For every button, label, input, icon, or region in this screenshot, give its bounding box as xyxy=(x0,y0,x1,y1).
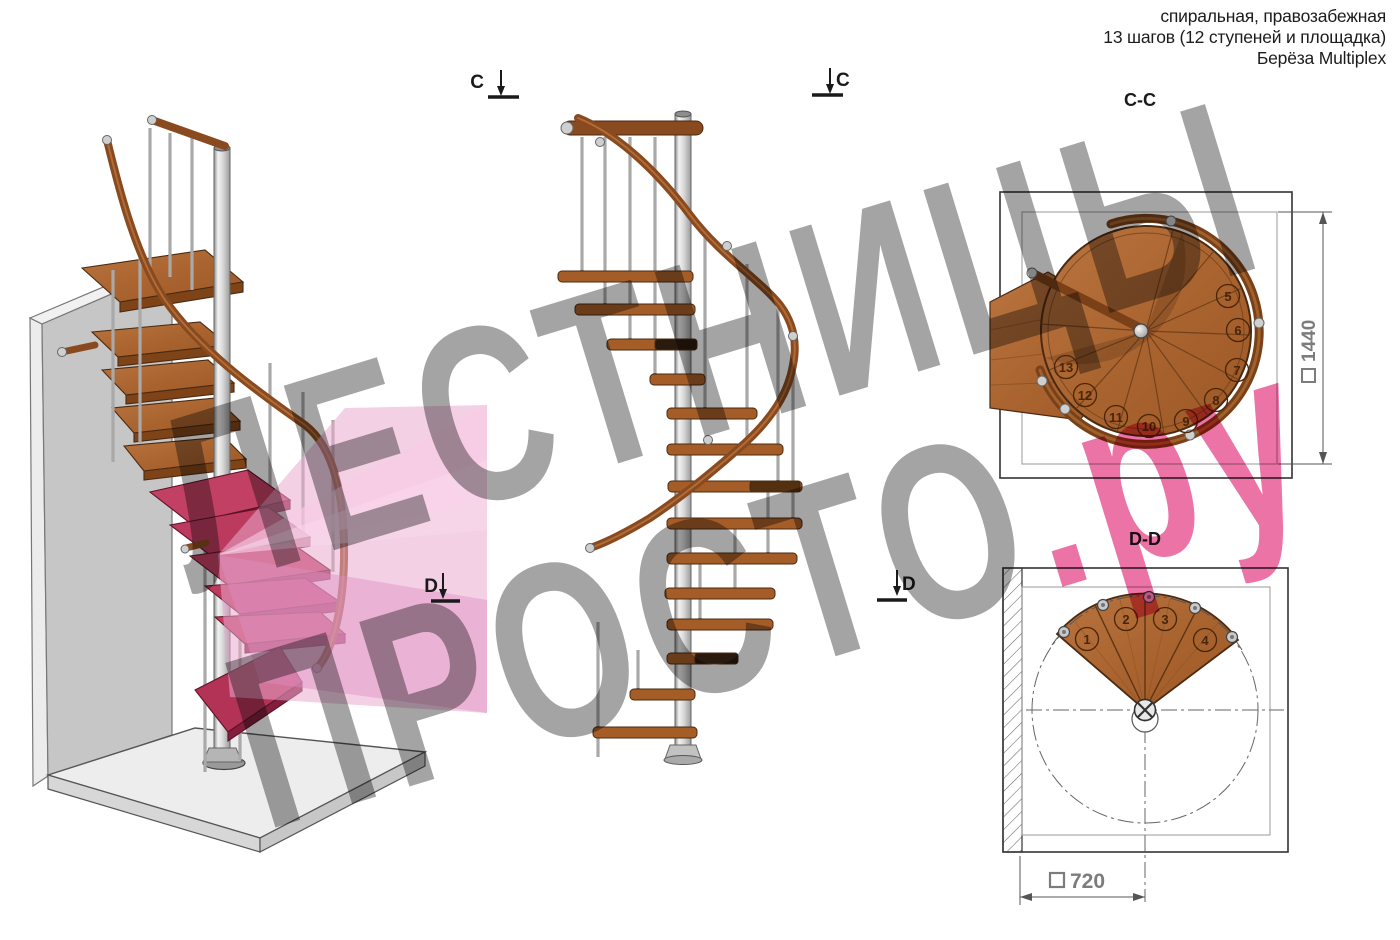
dd-plan-view: D-D xyxy=(1003,529,1288,905)
svg-text:2: 2 xyxy=(1122,612,1129,627)
svg-text:D: D xyxy=(902,574,916,595)
svg-text:C: C xyxy=(836,70,850,91)
cc-title: C-C xyxy=(1124,90,1156,110)
svg-text:9: 9 xyxy=(1182,414,1189,429)
3d-view xyxy=(30,116,487,853)
svg-text:4: 4 xyxy=(1201,633,1209,648)
svg-text:13: 13 xyxy=(1059,360,1073,375)
annotation-steps: 13 шагов (12 ступеней и площадка) xyxy=(1103,27,1386,48)
annotation-material: Берёза Multiplex xyxy=(1103,48,1386,69)
technical-drawing: C C D D C-C xyxy=(0,0,1400,940)
section-marker-c-left: C xyxy=(470,70,519,97)
svg-text:720: 720 xyxy=(1070,870,1105,893)
svg-text:7: 7 xyxy=(1233,363,1240,378)
section-marker-d-right: D xyxy=(877,570,916,600)
square-symbol xyxy=(1050,873,1064,887)
svg-text:1440: 1440 xyxy=(1299,320,1320,362)
section-plane-pink xyxy=(218,405,487,713)
stair-drawing-page: C C D D C-C xyxy=(0,0,1400,940)
svg-text:12: 12 xyxy=(1078,388,1092,403)
drawing-annotation: спиральная, правозабежная 13 шагов (12 с… xyxy=(1103,6,1386,69)
square-symbol xyxy=(1302,369,1315,382)
section-marker-c-right: C xyxy=(812,68,850,95)
svg-text:1: 1 xyxy=(1083,632,1090,647)
svg-text:C: C xyxy=(470,72,484,93)
svg-text:5: 5 xyxy=(1224,289,1231,304)
annotation-type: спиральная, правозабежная xyxy=(1103,6,1386,27)
cc-dimension-1440: 1440 xyxy=(1278,212,1332,464)
svg-text:10: 10 xyxy=(1142,419,1156,434)
dd-wall-hatch xyxy=(1003,568,1022,852)
svg-text:6: 6 xyxy=(1234,323,1241,338)
dd-dimension-720: 720 xyxy=(1020,856,1145,905)
svg-text:D: D xyxy=(424,576,438,597)
dd-title: D-D xyxy=(1129,529,1161,549)
svg-text:8: 8 xyxy=(1212,393,1219,408)
dd-pole-hub xyxy=(1132,700,1158,733)
svg-text:11: 11 xyxy=(1109,410,1123,425)
svg-text:3: 3 xyxy=(1161,612,1168,627)
cc-plan-view: C-C xyxy=(990,90,1332,478)
elevation-view xyxy=(558,111,802,765)
dd-step-fan xyxy=(1052,592,1242,711)
cc-pole-finial xyxy=(1134,324,1148,338)
